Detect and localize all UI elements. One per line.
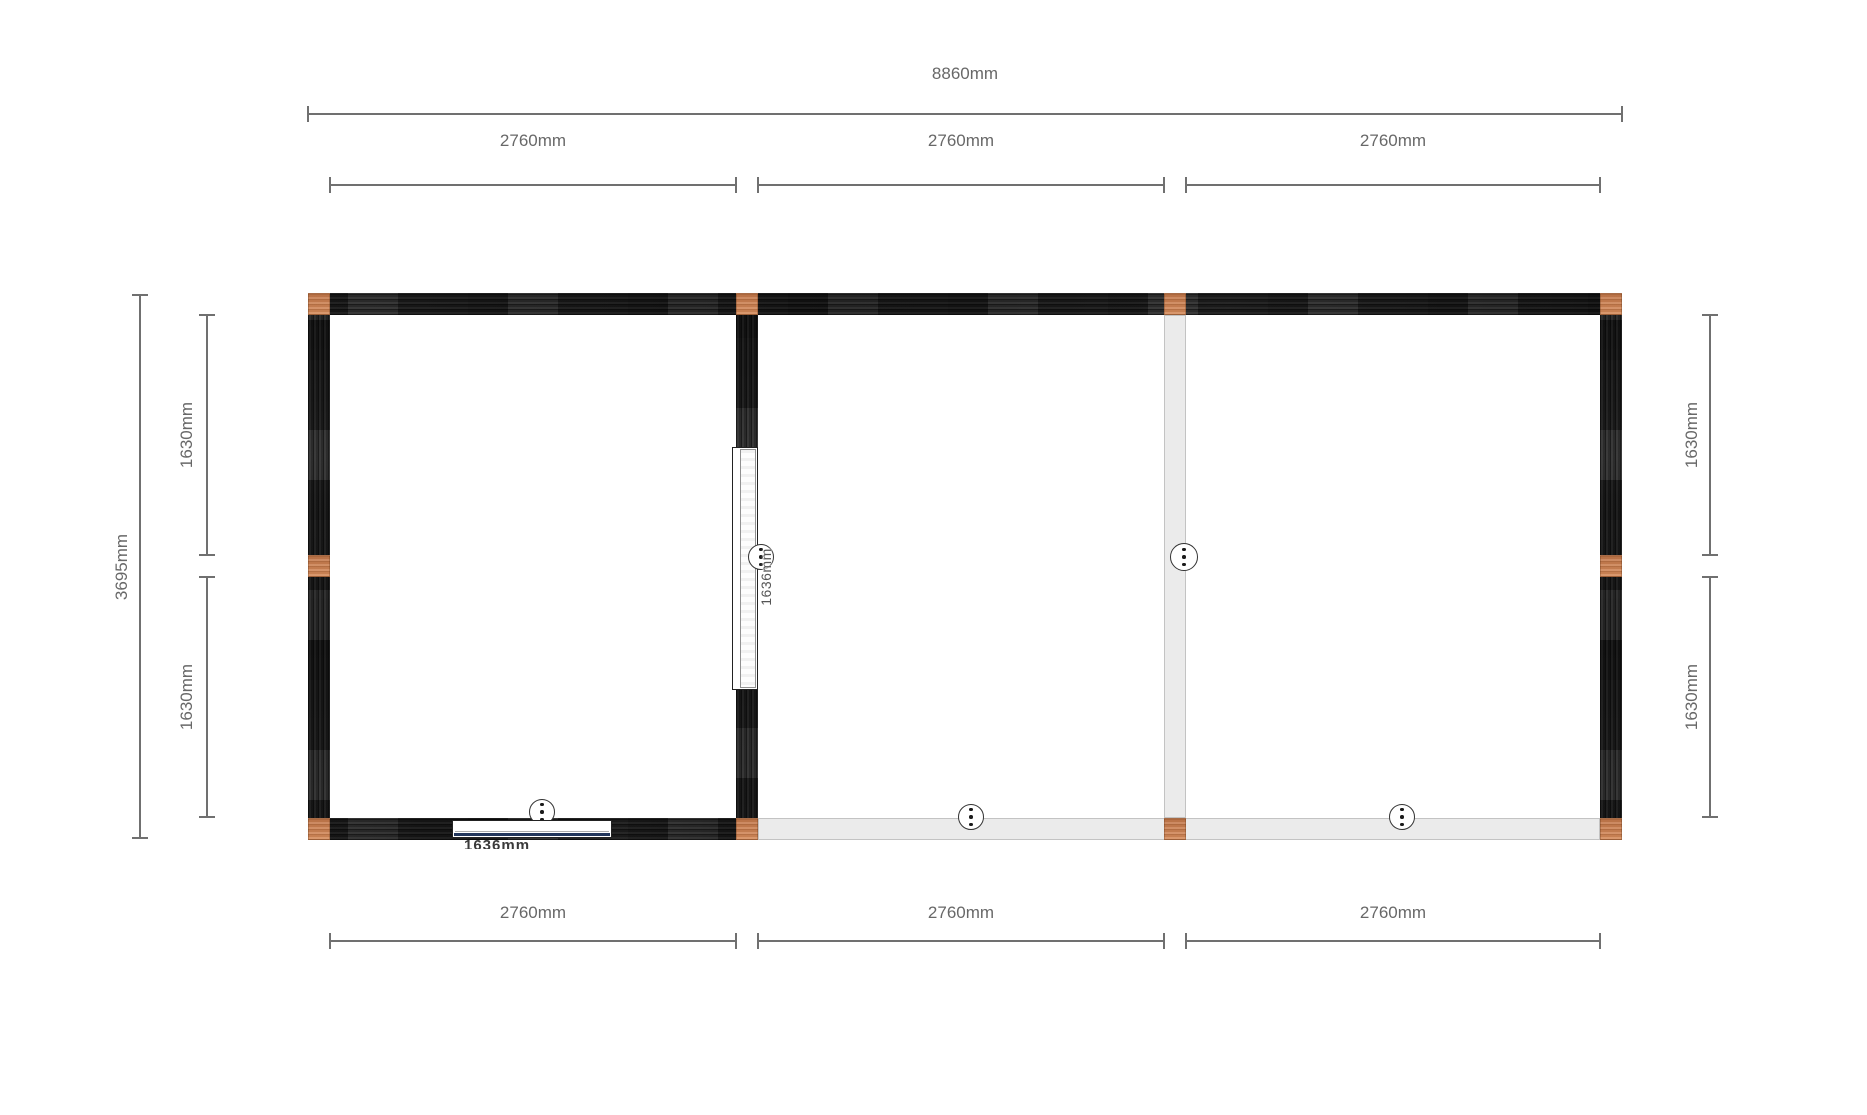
connector-dot xyxy=(540,810,544,814)
corner-post-top-left xyxy=(308,293,330,315)
dimension-tick xyxy=(1702,816,1718,818)
dimension-label-top-bay-1: 2760mm xyxy=(473,131,593,151)
corner-post-bottom-left xyxy=(308,818,330,840)
dimension-label-total-depth: 3695mm xyxy=(112,507,132,627)
connector-dot xyxy=(1182,555,1186,559)
dimension-line-top-bay-2 xyxy=(758,184,1164,186)
front-door-track xyxy=(455,831,609,832)
dimension-label-bottom-bay-1: 2760mm xyxy=(473,903,593,923)
dimension-tick xyxy=(199,576,215,578)
side-door-leaf xyxy=(740,449,756,688)
dimension-line-total-width xyxy=(308,113,1622,115)
connector-3-dots-icon[interactable] xyxy=(958,804,984,830)
post-left-middle xyxy=(308,555,330,577)
post-bottom-junction-2 xyxy=(1164,818,1186,840)
connector-3-dots-icon[interactable] xyxy=(1170,543,1198,571)
dimension-tick xyxy=(735,933,737,949)
dimension-line-total-depth xyxy=(139,295,141,838)
dimension-label-bottom-bay-2: 2760mm xyxy=(901,903,1021,923)
dimension-line-left-segment-2 xyxy=(206,577,208,817)
corner-post-bottom-right xyxy=(1600,818,1622,840)
connector-dot xyxy=(1182,548,1186,552)
dimension-line-bottom-bay-3 xyxy=(1186,940,1600,942)
dimension-line-top-bay-1 xyxy=(330,184,736,186)
front-door-size-label: 1636mm xyxy=(464,838,564,849)
dimension-tick xyxy=(735,177,737,193)
dimension-tick xyxy=(1702,314,1718,316)
connector-dot xyxy=(1400,808,1404,812)
dimension-label-right-segment-2: 1630mm xyxy=(1682,637,1702,757)
front-door[interactable] xyxy=(452,820,612,838)
dimension-tick xyxy=(329,177,331,193)
dimension-line-right-segment-1 xyxy=(1709,315,1711,555)
dimension-line-bottom-bay-1 xyxy=(330,940,736,942)
dimension-label-top-bay-2: 2760mm xyxy=(901,131,1021,151)
dimension-label-right-segment-1: 1630mm xyxy=(1682,375,1702,495)
dimension-line-left-segment-1 xyxy=(206,315,208,555)
dimension-tick xyxy=(199,816,215,818)
dimension-label-total-width: 8860mm xyxy=(905,64,1025,84)
post-top-junction-2 xyxy=(1164,293,1186,315)
dimension-line-top-bay-3 xyxy=(1186,184,1600,186)
dimension-tick xyxy=(132,294,148,296)
connector-dot xyxy=(1400,815,1404,819)
wall-top xyxy=(308,293,1622,315)
dimension-tick xyxy=(1185,933,1187,949)
post-right-middle xyxy=(1600,555,1622,577)
dimension-tick xyxy=(1599,177,1601,193)
dimension-tick xyxy=(199,554,215,556)
dimension-tick xyxy=(132,837,148,839)
side-door-size-label: 1636mm xyxy=(756,517,776,637)
dimension-label-bottom-bay-3: 2760mm xyxy=(1333,903,1453,923)
dimension-tick xyxy=(757,933,759,949)
dimension-tick xyxy=(1621,106,1623,122)
dimension-label-top-bay-3: 2760mm xyxy=(1333,131,1453,151)
dimension-label-left-segment-1: 1630mm xyxy=(177,375,197,495)
dimension-tick xyxy=(1702,554,1718,556)
post-top-junction-1 xyxy=(736,293,758,315)
connector-dot xyxy=(969,808,973,812)
post-bottom-junction-1 xyxy=(736,818,758,840)
dimension-line-right-segment-2 xyxy=(1709,577,1711,817)
connector-dot xyxy=(969,823,973,827)
dimension-tick xyxy=(1185,177,1187,193)
dimension-label-left-segment-2: 1630mm xyxy=(177,637,197,757)
dimension-tick xyxy=(757,177,759,193)
dimension-tick xyxy=(1599,933,1601,949)
corner-post-top-right xyxy=(1600,293,1622,315)
dimension-tick xyxy=(1163,177,1165,193)
dimension-tick xyxy=(199,314,215,316)
dimension-tick xyxy=(1163,933,1165,949)
dimension-tick xyxy=(329,933,331,949)
dimension-tick xyxy=(307,106,309,122)
connector-dot xyxy=(969,815,973,819)
floor-plan-canvas: 8860mm 2760mm 2760mm 2760mm 3695mm 1630m… xyxy=(0,0,1867,1115)
connector-dot xyxy=(1400,823,1404,827)
connector-3-dots-icon[interactable] xyxy=(1389,804,1415,830)
connector-dot xyxy=(540,803,544,807)
front-door-leaf xyxy=(454,833,610,836)
connector-dot xyxy=(1182,563,1186,567)
dimension-line-bottom-bay-2 xyxy=(758,940,1164,942)
dimension-tick xyxy=(1702,576,1718,578)
